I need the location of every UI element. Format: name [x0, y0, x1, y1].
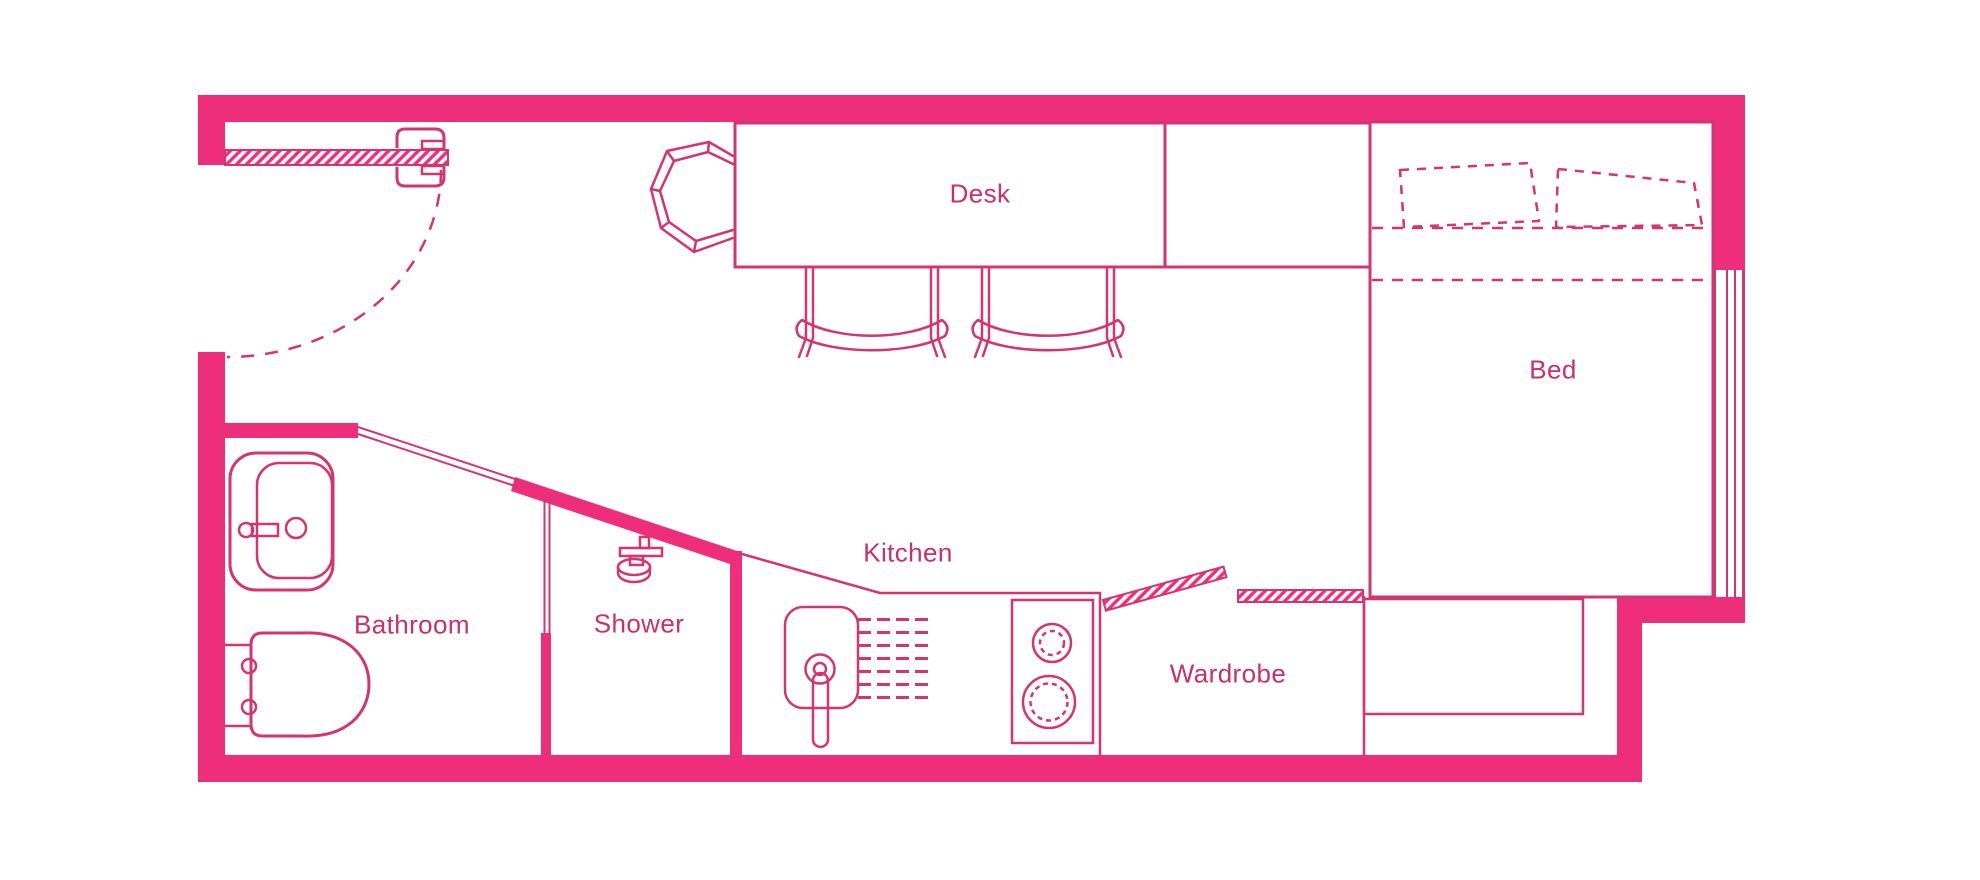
kitchen-counter-line [742, 554, 1100, 755]
sink-basin [257, 463, 332, 578]
door-leaf [225, 150, 448, 165]
wall-top [198, 95, 1745, 122]
door-hinge-bracket-bottom-icon [397, 167, 444, 186]
wall-right-upper [1713, 95, 1745, 270]
door-hinge-bracket-top-icon [397, 129, 444, 148]
door-swing-arc [227, 170, 441, 357]
wardrobe-door-closed [1238, 590, 1363, 602]
pillow-icon [1400, 163, 1539, 227]
bed-bench [1364, 599, 1583, 714]
bathroom-top-wall [225, 423, 358, 438]
wardrobe-doors [1103, 567, 1363, 611]
room-label-desk: Desk [950, 179, 1011, 210]
entry-door [225, 129, 448, 357]
glass-screen [358, 434, 518, 487]
floorplan-drawing [0, 0, 1980, 880]
kitchen-fixtures [785, 600, 1093, 747]
pillow-icon [1556, 169, 1702, 227]
bathroom-sink-icon [230, 453, 333, 590]
room-label-bed: Bed [1529, 355, 1576, 386]
toilet-icon [225, 633, 369, 736]
room-label-kitchen: Kitchen [863, 538, 953, 569]
burner-icon [1033, 624, 1071, 662]
glass-screen [358, 427, 518, 480]
shower-head-icon [618, 537, 662, 582]
room-label-shower: Shower [594, 609, 685, 640]
bed-area [1364, 122, 1713, 714]
desk-chair-icon [797, 268, 948, 357]
desk-unit [735, 123, 1370, 267]
window-icon [1715, 270, 1744, 597]
tub-chair-icon [651, 142, 733, 252]
wall-right-lower [1617, 597, 1642, 782]
kitchen-sink-icon [785, 607, 858, 708]
room-label-bathroom: Bathroom [354, 610, 470, 641]
wall-door-jamb [198, 95, 225, 165]
wall-left [198, 352, 225, 782]
bathroom-fixtures [225, 453, 369, 736]
drainboard-dashes [858, 618, 928, 699]
wall-bottom [198, 755, 1642, 782]
desk-outline [735, 123, 1370, 267]
shower-right-wall [730, 551, 742, 755]
faucet-icon [806, 655, 835, 684]
room-label-wardrobe: Wardrobe [1170, 659, 1286, 690]
floorplan: Desk Bed Bathroom Shower Kitchen Wardrob… [0, 0, 1980, 880]
desk-chair-icon [973, 268, 1124, 357]
bathroom-shower-divider-wall [541, 633, 551, 755]
stove-icon [1012, 600, 1093, 743]
wardrobe-door-open [1103, 567, 1226, 611]
